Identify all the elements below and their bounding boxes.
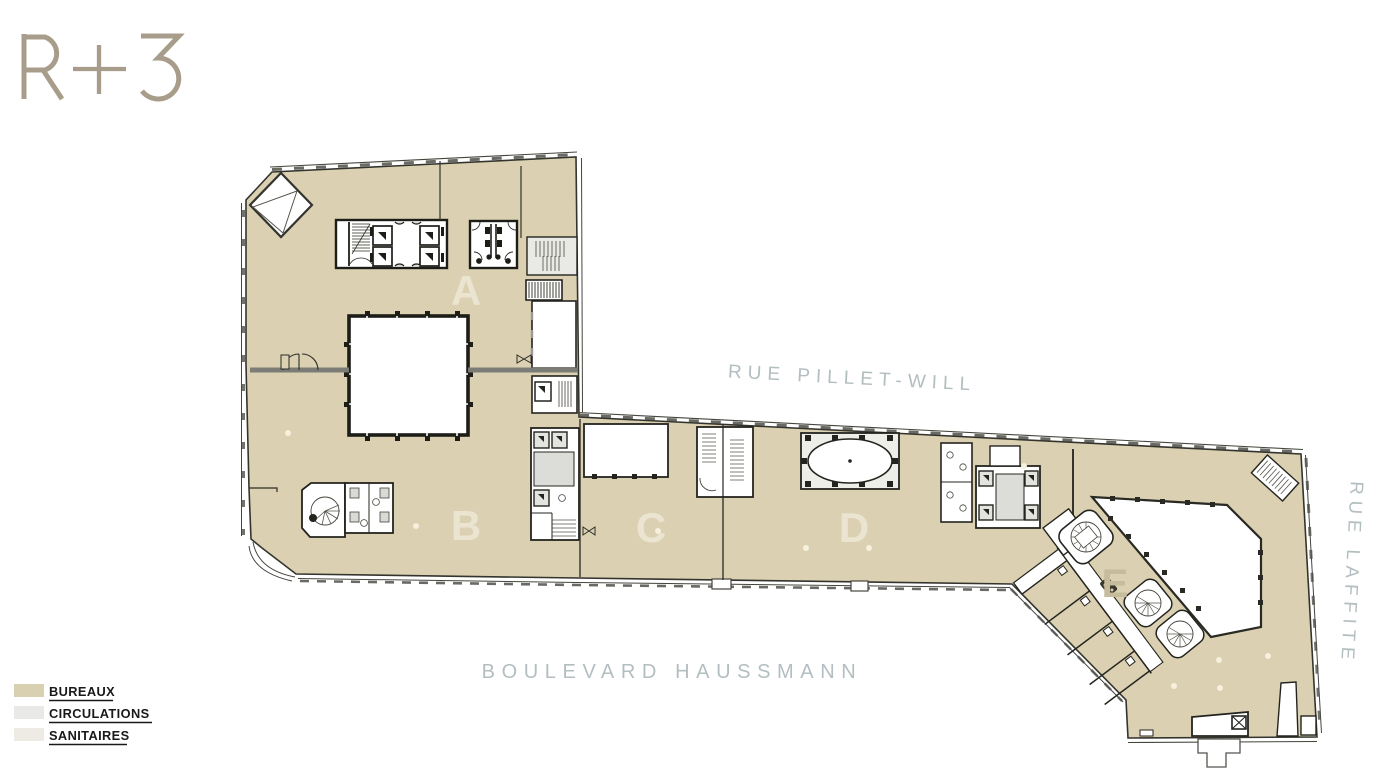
svg-text:C: C xyxy=(636,504,666,551)
svg-text:E: E xyxy=(1102,562,1129,606)
svg-text:RUE PILLET-WILL: RUE PILLET-WILL xyxy=(727,362,976,396)
svg-text:A: A xyxy=(451,267,481,314)
svg-text:RUE LAFFITE: RUE LAFFITE xyxy=(1337,481,1368,666)
svg-text:CIRCULATIONS: CIRCULATIONS xyxy=(49,706,150,721)
svg-text:BOULEVARD HAUSSMANN: BOULEVARD HAUSSMANN xyxy=(482,661,863,683)
svg-text:BUREAUX: BUREAUX xyxy=(49,684,115,699)
svg-text:SANITAIRES: SANITAIRES xyxy=(49,728,130,743)
svg-text:B: B xyxy=(451,502,481,549)
svg-text:D: D xyxy=(839,504,869,551)
